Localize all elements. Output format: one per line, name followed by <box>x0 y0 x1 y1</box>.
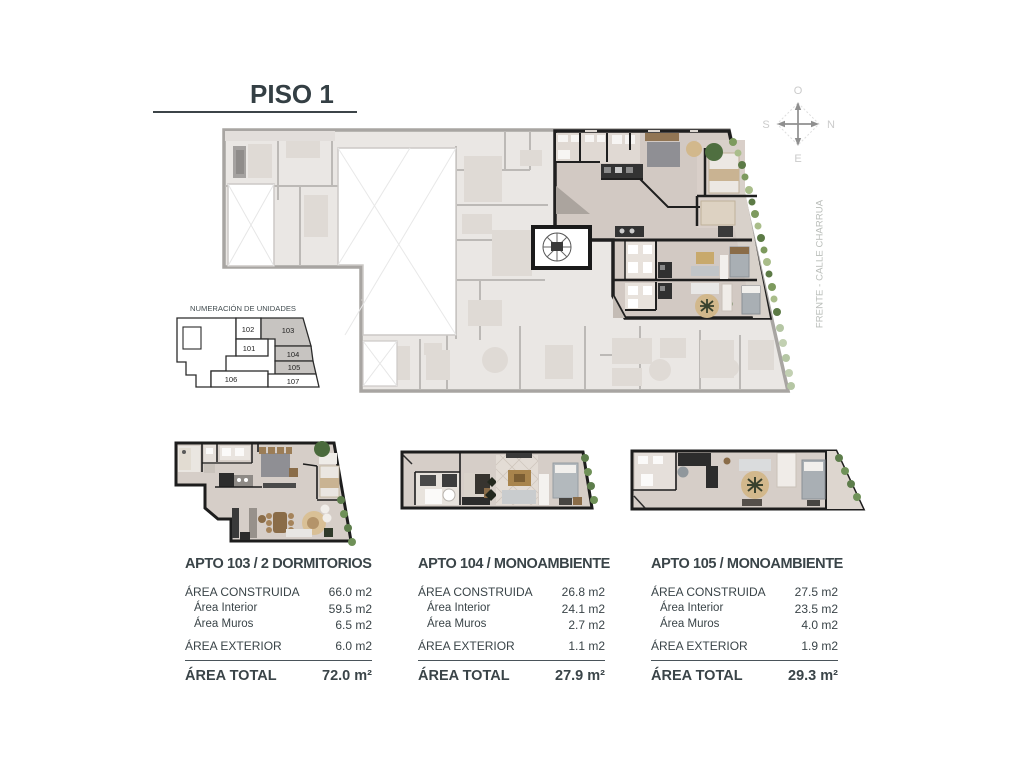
svg-text:104: 104 <box>287 350 300 359</box>
svg-text:107: 107 <box>287 377 300 386</box>
svg-text:E: E <box>794 153 801 165</box>
svg-text:102: 102 <box>242 325 255 334</box>
svg-text:O: O <box>794 85 803 97</box>
svg-text:N: N <box>827 119 835 131</box>
svg-text:S: S <box>762 119 769 131</box>
svg-text:106: 106 <box>225 375 238 384</box>
svg-text:101: 101 <box>243 344 256 353</box>
svg-text:NUMERACIÓN DE UNIDADES: NUMERACIÓN DE UNIDADES <box>190 304 296 313</box>
svg-text:103: 103 <box>282 326 295 335</box>
svg-text:105: 105 <box>288 363 301 372</box>
